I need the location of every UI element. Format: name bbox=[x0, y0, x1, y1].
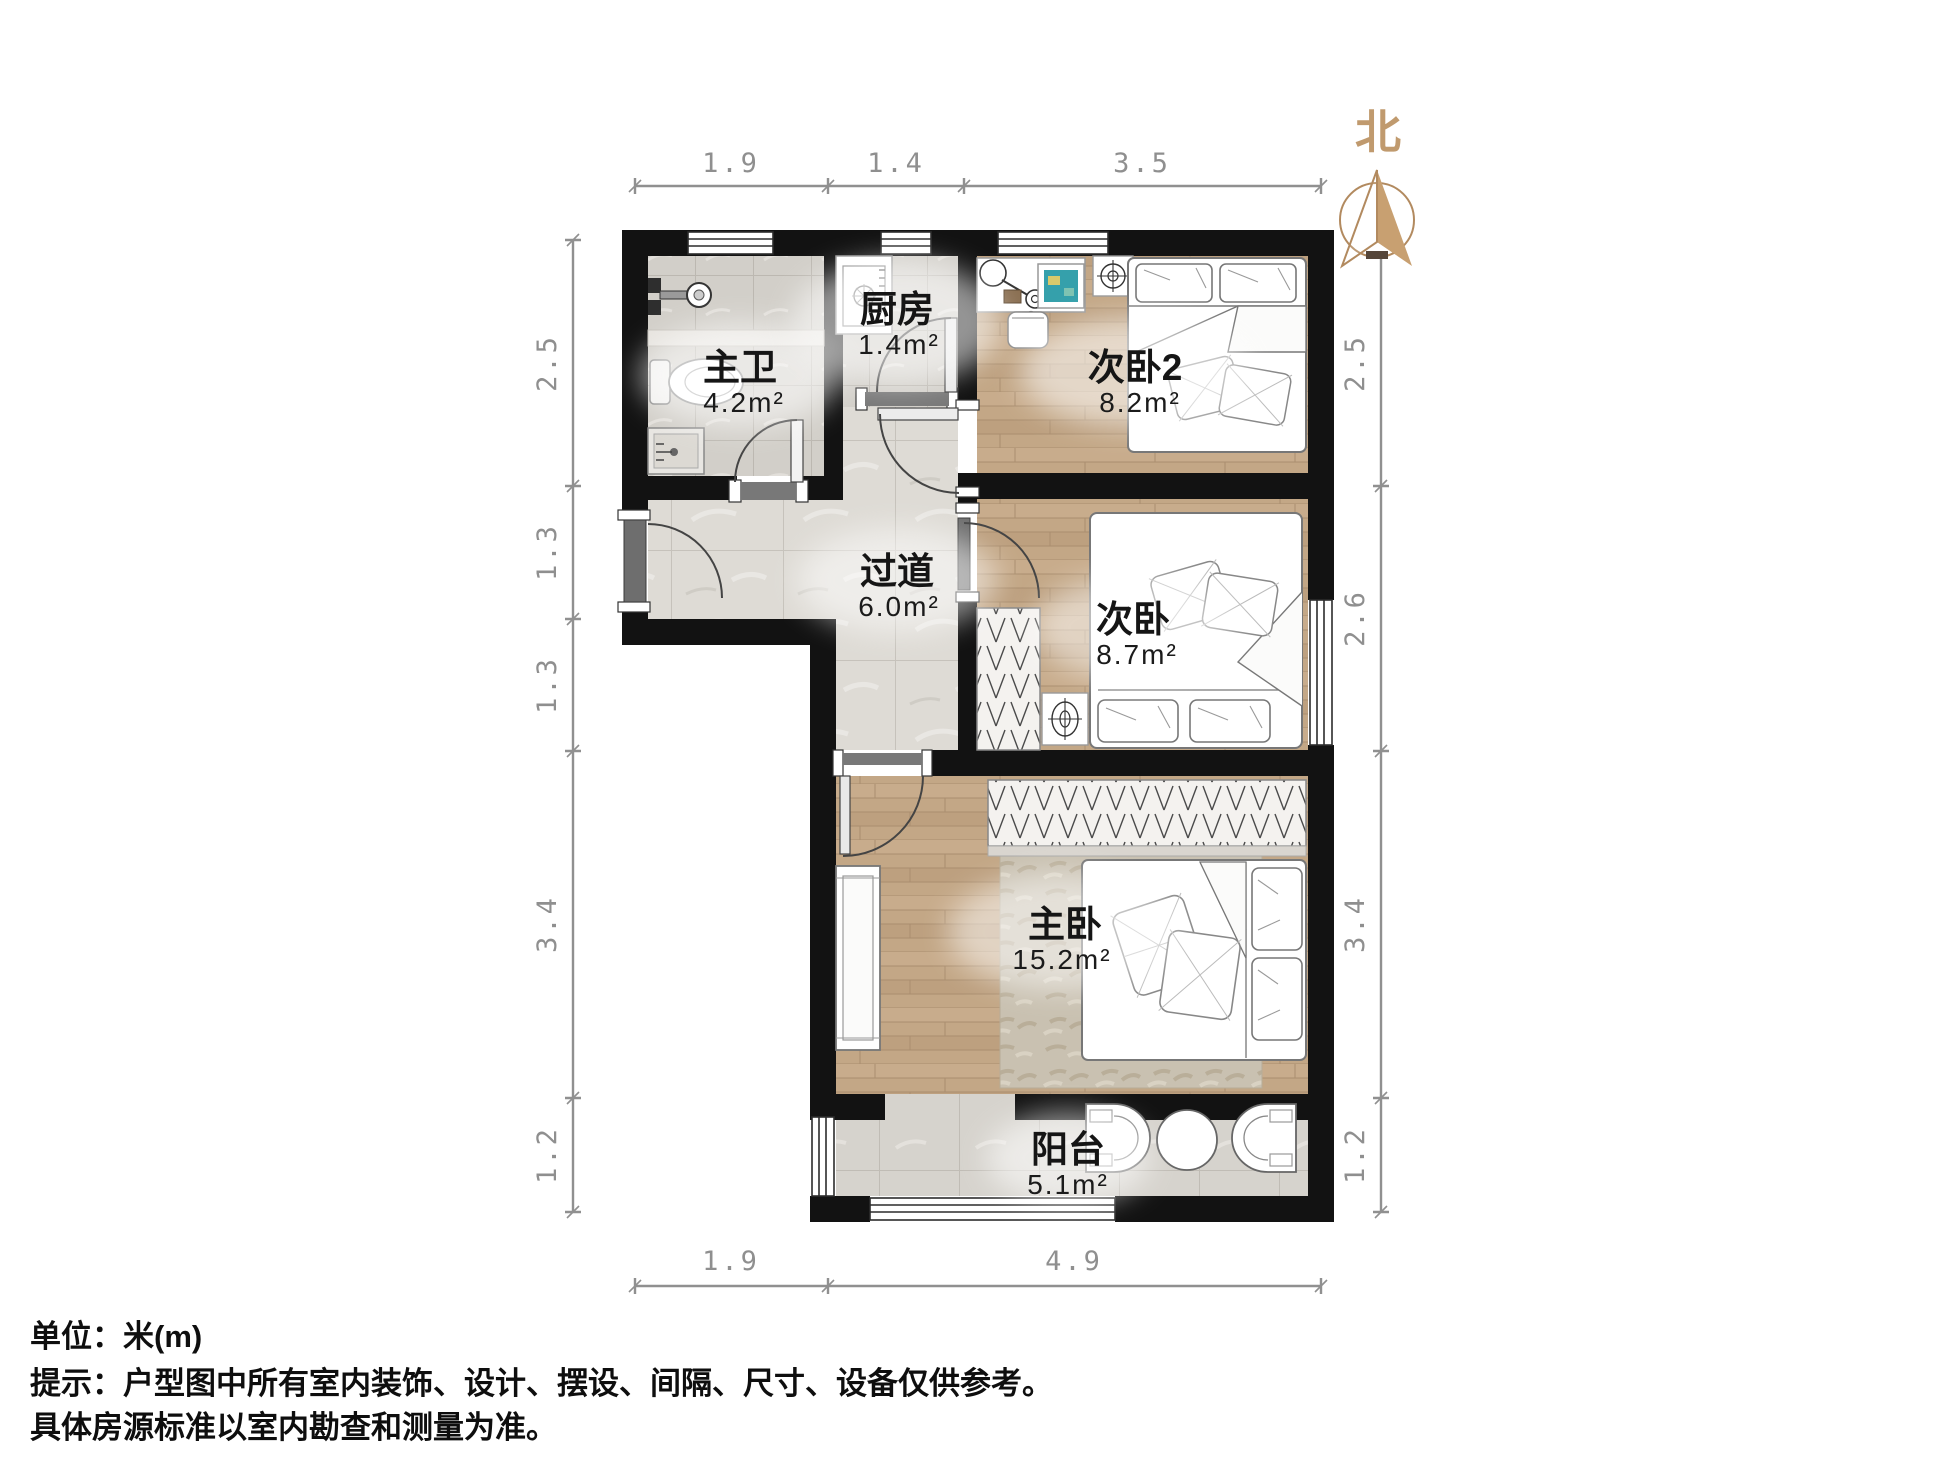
room-area: 5.1m² bbox=[1027, 1169, 1109, 1200]
wall-mid-lower bbox=[958, 602, 977, 776]
label-kitchen: 厨房 1.4m² bbox=[792, 260, 1002, 384]
cabinet-master-left bbox=[836, 866, 880, 1050]
disclaimer: 单位：米(m) 提示：户型图中所有室内装饰、设计、摆设、间隔、尺寸、设备仅供参考… bbox=[30, 1319, 1053, 1445]
balcony-left-window bbox=[812, 1117, 834, 1196]
dim-right-1: 2.5 bbox=[1340, 334, 1371, 392]
label-bedroom: 次卧 8.7m² bbox=[1033, 576, 1233, 680]
dim-top bbox=[629, 178, 1327, 194]
room-area: 8.2m² bbox=[1099, 387, 1181, 418]
balcony-table bbox=[1157, 1110, 1217, 1170]
label-balcony: 阳台 5.1m² bbox=[986, 1112, 1150, 1204]
wardrobe-master bbox=[988, 780, 1306, 856]
wall-hall-bottom bbox=[622, 619, 836, 645]
north-compass: 北 bbox=[1340, 106, 1414, 266]
room-area: 6.0m² bbox=[858, 591, 940, 622]
dim-right-4: 1.2 bbox=[1340, 1126, 1371, 1184]
room-area: 4.2m² bbox=[703, 387, 785, 418]
balcony-chair-right bbox=[1232, 1104, 1296, 1172]
desk-lamp-icon bbox=[980, 260, 1006, 286]
dim-bottom-2: 4.9 bbox=[1045, 1246, 1103, 1277]
dim-left-1: 2.5 bbox=[532, 334, 563, 392]
dim-left-3: 1.3 bbox=[532, 656, 563, 714]
bedroom-window bbox=[1310, 600, 1332, 745]
north-label: 北 bbox=[1355, 106, 1401, 158]
dim-left-2: 1.3 bbox=[532, 523, 563, 581]
dim-right bbox=[1373, 252, 1389, 1218]
room-area: 1.4m² bbox=[858, 329, 940, 360]
unit-note: 单位：米(m) bbox=[30, 1319, 202, 1354]
room-area: 15.2m² bbox=[1012, 944, 1111, 975]
wardrobe-bedroom bbox=[977, 608, 1040, 750]
bath-window bbox=[688, 232, 773, 254]
dim-right-3: 3.4 bbox=[1340, 895, 1371, 953]
room-name: 次卧2 bbox=[1088, 347, 1183, 388]
label-bedroom2: 次卧2 8.2m² bbox=[1020, 317, 1250, 427]
wall-bath-bottom-left bbox=[648, 476, 737, 500]
dim-left bbox=[565, 234, 581, 1218]
dim-right-2: 2.6 bbox=[1340, 589, 1371, 647]
tip-note-line1: 提示：户型图中所有室内装饰、设计、摆设、间隔、尺寸、设备仅供参考。 bbox=[30, 1366, 1053, 1401]
room-name: 过道 bbox=[860, 551, 934, 592]
room-name: 次卧 bbox=[1096, 599, 1170, 640]
label-master-bedroom: 主卧 15.2m² bbox=[948, 874, 1178, 990]
kitchen-window bbox=[881, 232, 931, 254]
wall-left-mid bbox=[810, 645, 836, 1117]
wall-right-lower bbox=[1308, 745, 1334, 1222]
wall-balcony-bottom-left bbox=[810, 1196, 870, 1222]
wall-right-upper bbox=[1308, 230, 1334, 600]
room-name: 阳台 bbox=[1031, 1129, 1105, 1170]
dim-bottom bbox=[629, 1278, 1327, 1294]
dim-top-1: 1.9 bbox=[702, 148, 760, 179]
dim-left-4: 3.4 bbox=[532, 895, 563, 953]
floor-plan: 主卫 4.2m² 厨房 1.4m² 次卧2 8.2m² 过道 6.0m² 次卧 … bbox=[0, 0, 1957, 1468]
ceiling-light-bedroom bbox=[1042, 693, 1088, 745]
wall-bedroom-master bbox=[922, 750, 1334, 776]
compass-base bbox=[1366, 251, 1388, 259]
label-hallway: 过道 6.0m² bbox=[797, 528, 997, 632]
balcony-passage bbox=[885, 1094, 1015, 1120]
desk-box bbox=[1004, 290, 1021, 303]
wall-master-bottom-left bbox=[810, 1094, 885, 1120]
sink-icon bbox=[648, 428, 704, 474]
floor-plan-page: 主卫 4.2m² 厨房 1.4m² 次卧2 8.2m² 过道 6.0m² 次卧 … bbox=[0, 0, 1957, 1468]
dim-bottom-1: 1.9 bbox=[702, 1246, 760, 1277]
dim-left-5: 1.2 bbox=[532, 1126, 563, 1184]
wall-balcony-bottom-right bbox=[1115, 1196, 1334, 1222]
picture-frame bbox=[1038, 264, 1084, 308]
room-name: 厨房 bbox=[860, 289, 934, 330]
dim-top-2: 1.4 bbox=[867, 148, 925, 179]
bedroom2-window bbox=[998, 232, 1108, 254]
room-name: 主卫 bbox=[703, 347, 777, 388]
wall-bedroom2-bedroom bbox=[958, 473, 1334, 499]
tip-note-line2: 具体房源标准以室内勘查和测量为准。 bbox=[30, 1410, 557, 1445]
room-name: 主卧 bbox=[1028, 904, 1102, 945]
room-area: 8.7m² bbox=[1096, 639, 1178, 670]
dim-top-3: 3.5 bbox=[1113, 148, 1171, 179]
